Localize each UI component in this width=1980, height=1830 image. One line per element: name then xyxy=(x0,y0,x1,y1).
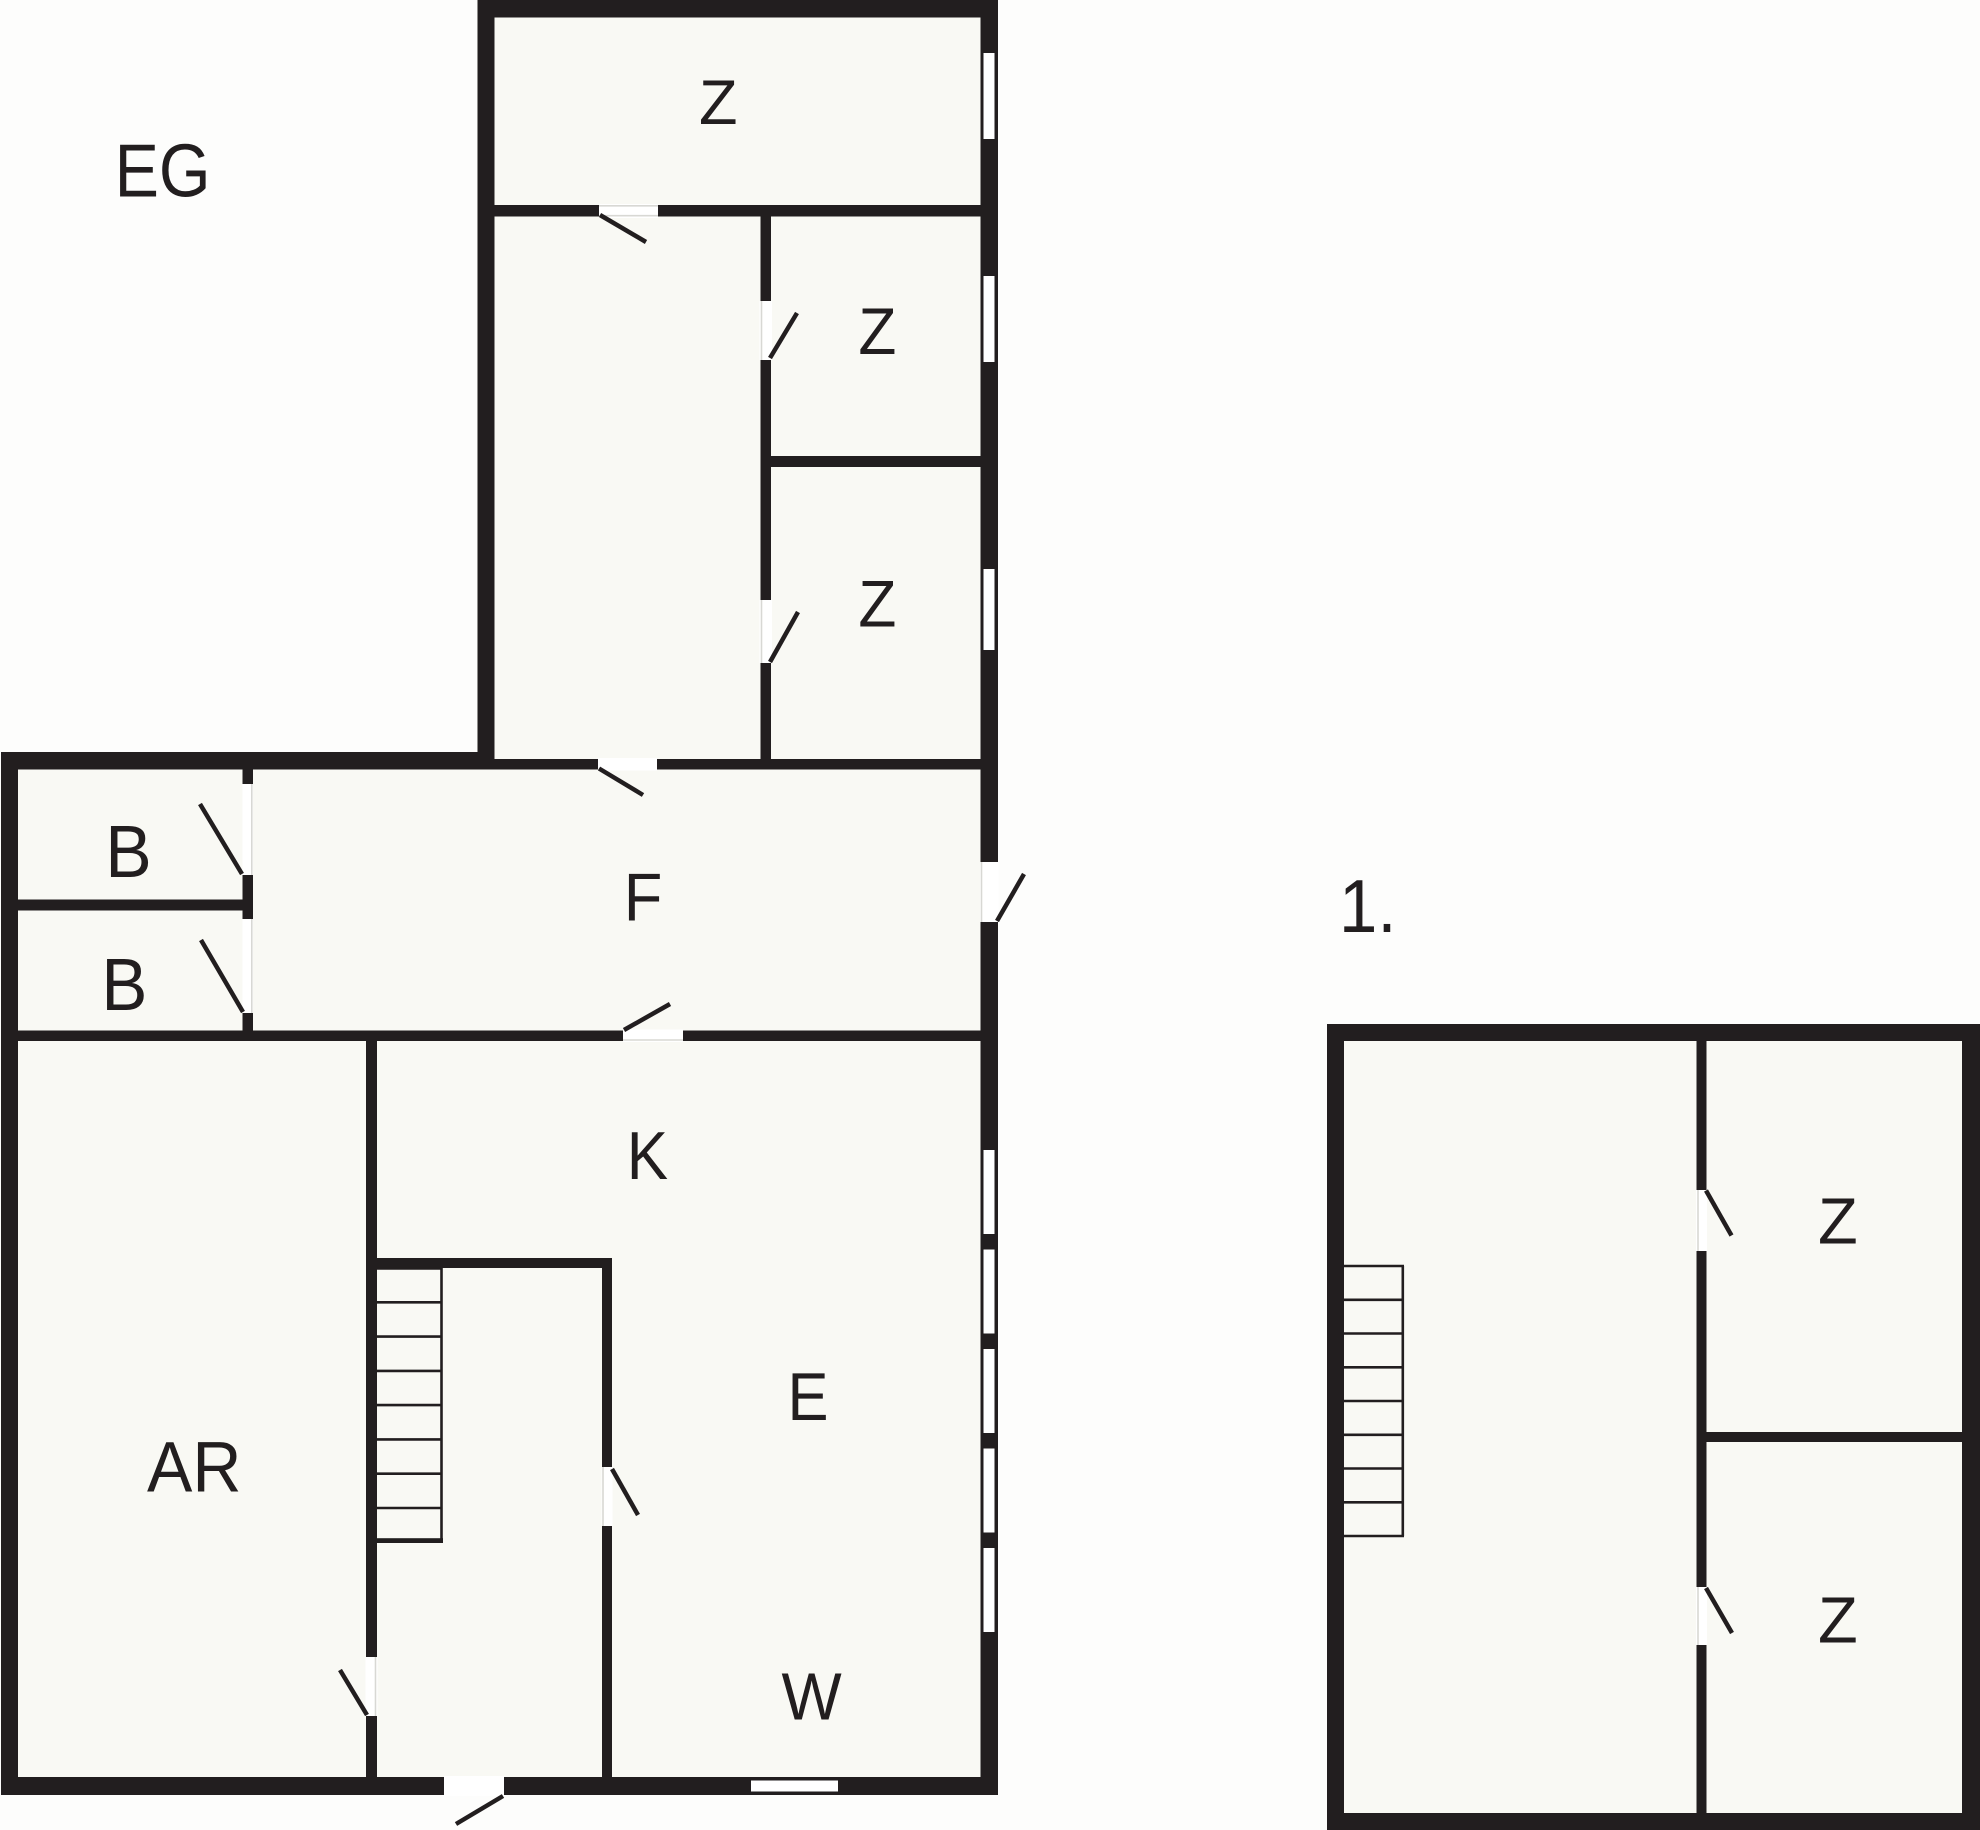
svg-text:Z: Z xyxy=(699,68,737,138)
svg-text:Z: Z xyxy=(1818,1583,1858,1656)
svg-text:Z: Z xyxy=(1818,1185,1858,1258)
svg-text:B: B xyxy=(101,943,147,1026)
svg-text:W: W xyxy=(782,1660,843,1735)
svg-text:B: B xyxy=(105,810,152,893)
svg-text:1.: 1. xyxy=(1339,864,1397,948)
svg-text:Z: Z xyxy=(858,566,896,640)
svg-text:E: E xyxy=(788,1359,829,1435)
svg-text:Z: Z xyxy=(858,294,896,368)
svg-text:EG: EG xyxy=(115,129,211,213)
svg-text:AR: AR xyxy=(147,1429,242,1508)
svg-text:K: K xyxy=(627,1118,668,1194)
svg-text:F: F xyxy=(624,860,663,936)
